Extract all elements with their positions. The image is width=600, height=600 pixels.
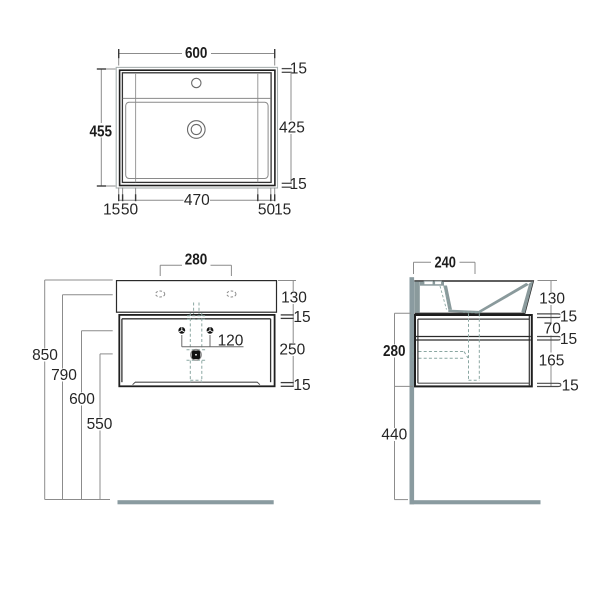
- svg-text:600: 600: [185, 45, 208, 62]
- svg-text:240: 240: [434, 254, 456, 271]
- svg-text:600: 600: [69, 391, 95, 408]
- svg-text:15: 15: [289, 176, 306, 193]
- svg-text:15: 15: [562, 377, 579, 394]
- svg-text:130: 130: [539, 291, 565, 308]
- svg-text:50: 50: [258, 202, 276, 219]
- svg-text:120: 120: [218, 332, 244, 349]
- svg-text:15: 15: [293, 309, 310, 326]
- svg-text:455: 455: [90, 123, 113, 140]
- svg-text:165: 165: [539, 352, 565, 369]
- svg-text:15: 15: [560, 331, 577, 348]
- svg-text:70: 70: [544, 320, 562, 337]
- svg-text:250: 250: [279, 342, 305, 359]
- svg-text:50: 50: [121, 202, 139, 219]
- svg-text:280: 280: [383, 343, 406, 360]
- svg-text:15: 15: [103, 202, 120, 219]
- svg-text:15: 15: [293, 377, 310, 394]
- svg-text:15: 15: [560, 308, 577, 325]
- svg-text:850: 850: [32, 347, 58, 364]
- svg-text:440: 440: [381, 427, 407, 444]
- svg-text:790: 790: [51, 367, 77, 384]
- svg-text:425: 425: [279, 120, 305, 137]
- svg-text:280: 280: [185, 252, 208, 269]
- svg-text:550: 550: [87, 416, 113, 433]
- svg-text:470: 470: [184, 192, 210, 209]
- svg-text:15: 15: [274, 202, 291, 219]
- svg-text:15: 15: [290, 61, 307, 78]
- svg-text:130: 130: [281, 290, 307, 307]
